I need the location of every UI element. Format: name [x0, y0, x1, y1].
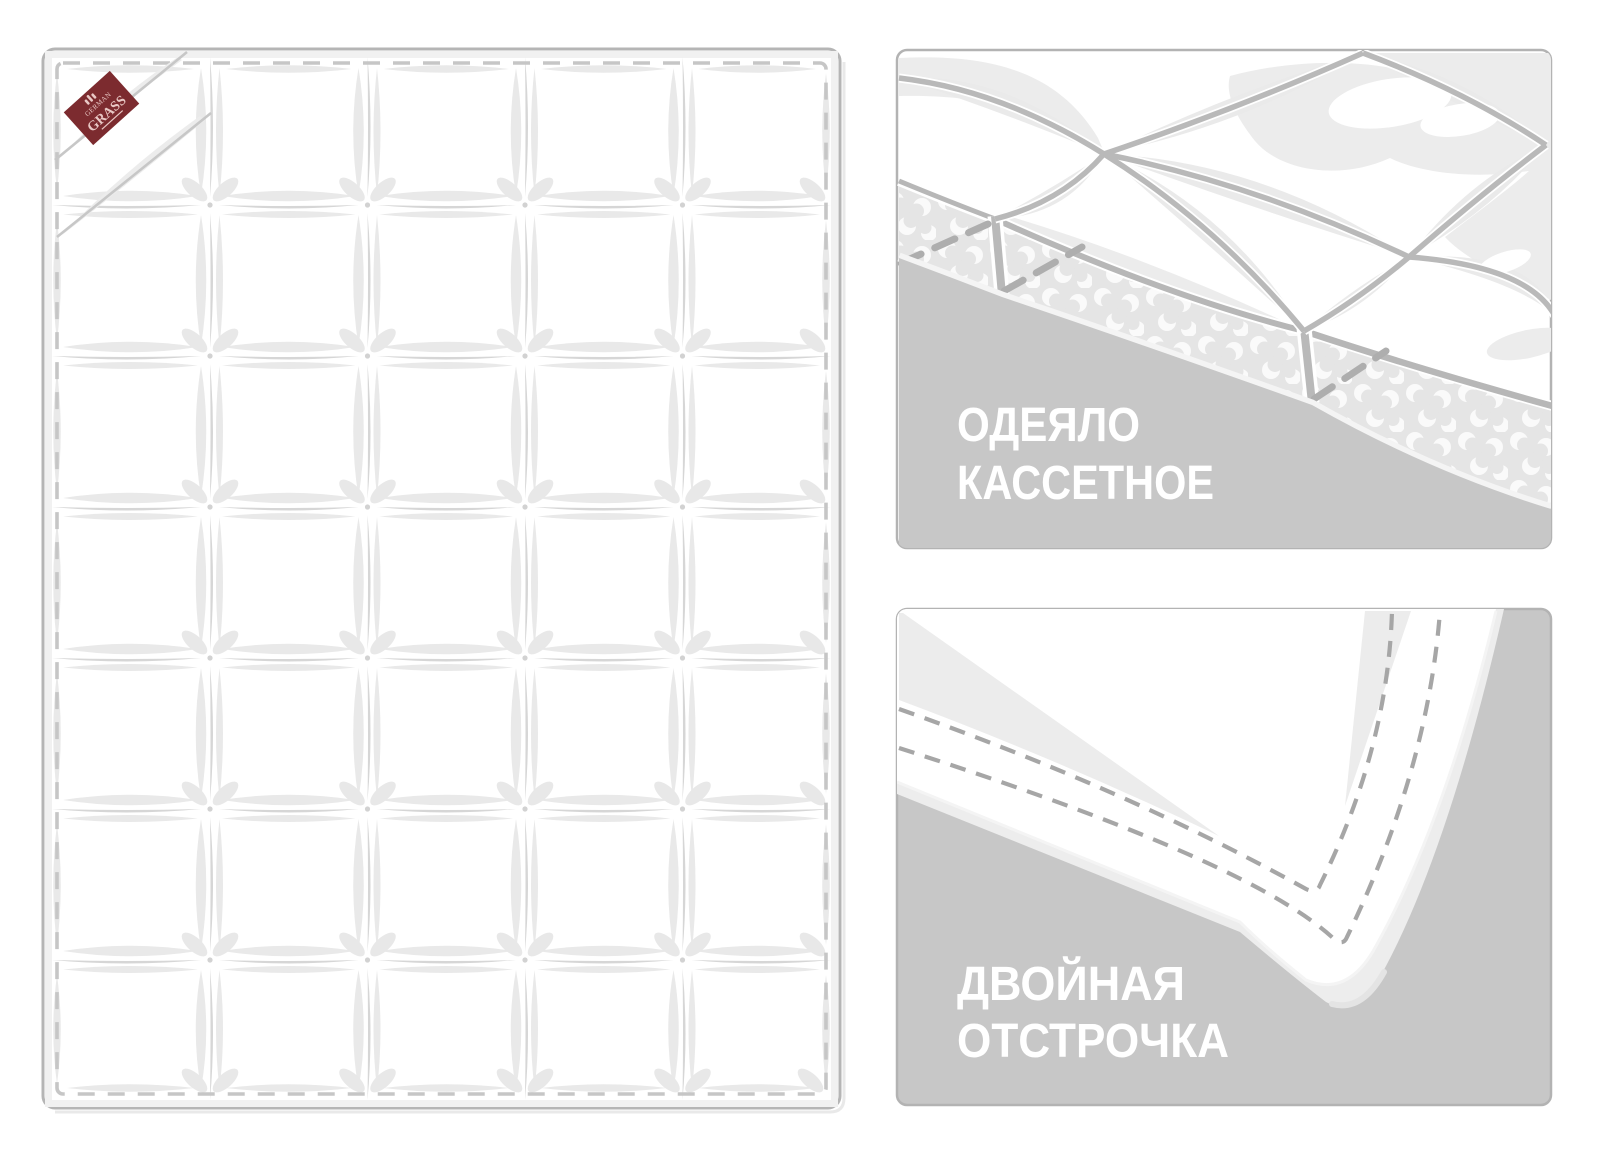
svg-text:ДВОЙНАЯ: ДВОЙНАЯ — [957, 956, 1185, 1011]
svg-text:ОДЕЯЛО: ОДЕЯЛО — [957, 399, 1140, 452]
svg-text:ОТСТРОЧКА: ОТСТРОЧКА — [957, 1015, 1229, 1068]
svg-text:КАССЕТНОЕ: КАССЕТНОЕ — [957, 457, 1214, 510]
